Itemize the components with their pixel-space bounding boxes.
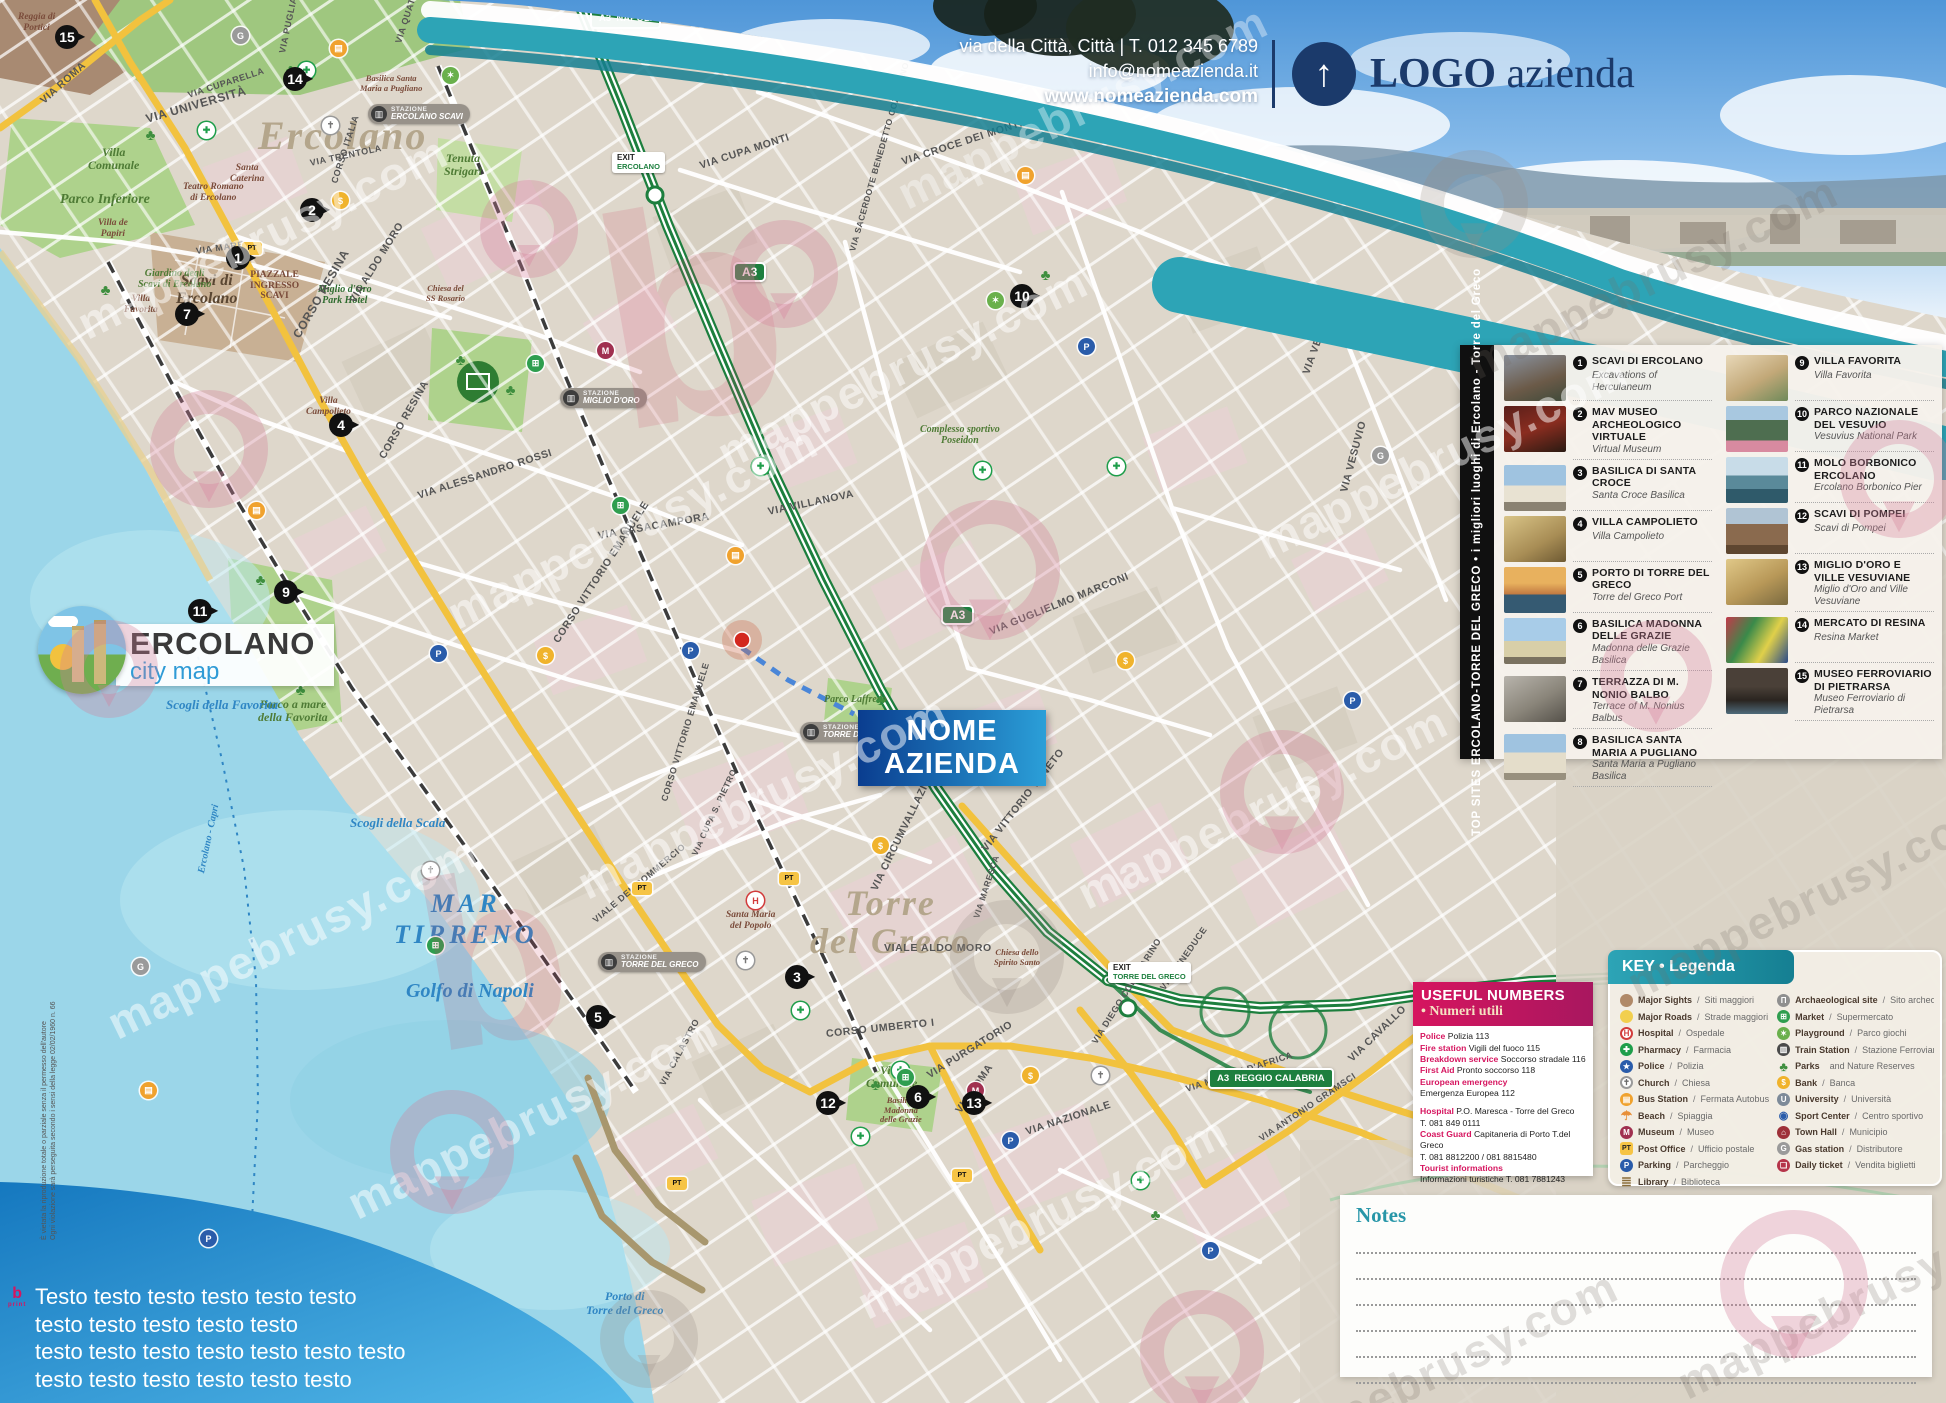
numbered-site-marker: 14 ▶ [283,67,307,91]
site-photo-thumbnail [1726,355,1788,401]
legend-row: ⌂ Town Hall / Municipio [1777,1124,1934,1141]
watermark-pin-icon [920,500,1060,640]
map-place-label: Basilica Santa Maria a Pugliano [360,74,422,93]
hospital-icon: H [1620,1027,1633,1040]
parking-icon: P [682,642,699,659]
marker-pointer-icon: ▶ [196,306,205,320]
bank-icon: $ [1117,652,1134,669]
watermark-text: mappebrusy.com [849,1104,1237,1330]
map-place-label: Scavi di Ercolano [176,272,237,307]
road-name-label: VIA MARESCA [971,854,1001,920]
site-photo-thumbnail [1504,676,1566,722]
road-name-label: VIA MARE [195,239,244,256]
site-subtitle: Scavi di Pompei [1814,523,1934,535]
top-site-entry: 6 BASILICA MADONNA DELLE GRAZIE Madonna … [1504,618,1712,671]
top-site-entry: 9 VILLA FAVORITA Villa Favorita [1726,355,1934,401]
top-site-entry: 4 VILLA CAMPOLIETO Villa Campolieto [1504,516,1712,562]
parking-icon: P [1344,692,1361,709]
tree-icon: ♣ [1037,267,1054,284]
marker-pointer-icon: ▶ [983,1095,992,1109]
useful-number-line: Tourist informations [1420,1163,1586,1174]
site-number-badge: 12 [1795,509,1809,523]
site-title: MIGLIO D'ORO E VILLE VESUVIANE [1814,559,1934,584]
church-icon: ✝ [422,862,439,879]
legend-row: Major Sights / Siti maggiori [1620,992,1769,1009]
road-name-label: VIA ALESSANDRO ROSSI [416,447,554,502]
legend-row: H Hospital / Ospedale [1620,1025,1769,1042]
library-icon: ≣ [1620,1175,1633,1188]
marker-pointer-icon: ▶ [350,417,359,431]
site-number-badge: 11 [1795,458,1809,472]
site-photo-thumbnail [1504,567,1566,613]
top-site-entry: 14 MERCATO DI RESINA Resina Market [1726,617,1934,663]
site-title: VILLA FAVORITA [1814,355,1901,368]
site-photo-thumbnail [1726,457,1788,503]
marker-number: 11 [188,599,212,623]
road-name-label: VIA PURGATORIO [925,1019,1015,1081]
marker-number: 14 [283,67,307,91]
useful-number-line: T. 081 8812200 / 081 8815480 [1420,1152,1586,1163]
bus-stop-icon: ▤ [727,547,744,564]
top-sites-panel: TOP SITES ERCOLANO-TORRE DEL GRECO • i m… [1460,345,1942,759]
useful-number-line: Informazioni turistiche T. 081 7881243 [1420,1174,1586,1185]
useful-number-line: T. 081 849 0111 [1420,1118,1586,1129]
watermark-pin-icon [1220,730,1344,854]
bus-stop-icon: ▤ [248,502,265,519]
marker-pointer-icon: ▶ [321,202,330,216]
marker-pointer-icon: ▶ [806,969,815,983]
numbered-site-marker: 2 ▶ [300,198,324,222]
market-icon: ⊞ [897,1069,914,1086]
site-photo-thumbnail [1726,668,1788,714]
a3-motorway-shield: A3 [733,262,766,282]
pharmacy-icon: ✚ [852,1128,869,1145]
tree-icon: ♣ [142,127,159,144]
gas-station-icon: G [1777,1142,1790,1155]
marker-number: 5 [586,1005,610,1029]
museum-icon: M [967,1082,984,1099]
site-number-badge: 15 [1795,669,1809,683]
top-sites-title-strip: TOP SITES ERCOLANO-TORRE DEL GRECO • i m… [1460,345,1494,759]
site-number-badge: 13 [1795,560,1809,574]
road-name-label: VIA CUPA S. PIETRO [689,767,738,857]
road-name-label: VIA ROMA [38,59,88,106]
road-name-label: VIA CALASTRO [658,1017,702,1087]
useful-number-line: European emergency [1420,1077,1586,1088]
parks-icon: ♣ [1777,1060,1790,1073]
museum-icon: M [597,342,614,359]
header-email: info@nomeazienda.it [959,59,1258,84]
playground-icon: ✶ [1152,52,1169,69]
site-subtitle: Resina Market [1814,632,1934,644]
city-map-poster: Ercolano Torre del Greco Reggia di Porti… [0,0,1946,1403]
legend-row: M Museum / Museo [1620,1124,1769,1141]
bank-icon: $ [1022,1067,1039,1084]
legend-panel: KEY • Legenda Major Sights / Siti maggio… [1608,950,1942,1186]
numbered-site-marker: 1 ▶ [226,246,250,270]
map-place-label: Porto di Torre del Greco [586,1290,664,1318]
map-place-label: Scogli della Favorita [166,698,278,713]
map-place-label: Villa Comunale [866,1064,917,1090]
playground-icon: ✶ [987,292,1004,309]
bank-icon: $ [1777,1076,1790,1089]
train-icon: ▥ [563,390,579,406]
company-logo-arrow-icon: ↑ [1292,42,1356,106]
map-place-label: Parco Inferiore [60,192,150,207]
company-location-callout: NOME AZIENDA [858,710,1046,786]
footer-text-line: testo testo testo testo testo [35,1311,406,1339]
site-title: SCAVI DI POMPEI [1814,508,1906,521]
tree-icon: ♣ [502,382,519,399]
museum-icon: M [1620,1126,1633,1139]
road-name-label: VIA CUPA MONTI [698,131,791,171]
footer-text-line: Testo testo testo testo testo testo [35,1283,406,1311]
map-place-label: Santa Caterina [230,163,264,184]
bus-stop-icon: ▤ [140,1082,157,1099]
legend-row: ✶ Playground / Parco giochi [1777,1025,1934,1042]
road-name-label: VIA VESUVIO [1338,420,1369,494]
marker-number: 6 [906,1085,930,1109]
useful-numbers-title-en: USEFUL NUMBERS [1421,987,1585,1004]
site-number-badge: 2 [1573,407,1587,421]
post-office-icon: PT [667,1177,687,1190]
watermark-pin-icon [390,1090,514,1214]
university-icon: U [1777,1093,1790,1106]
site-title: BASILICA MADONNA DELLE GRAZIE [1592,618,1712,643]
copyright-fineprint: È vietata la riproduzione totale o parzi… [40,1001,58,1240]
site-subtitle: Excavations of Herculaneum [1592,370,1712,394]
notes-writing-line [1356,1306,1916,1332]
road-name-label: VIA VILLANOVA [767,488,855,518]
header-contact-block: via della Città, Città | T. 012 345 6789… [959,34,1258,111]
site-title: MERCATO DI RESINA [1814,617,1926,630]
site-subtitle: Torre del Greco Port [1592,592,1712,604]
road-name-label: VIA NAZIONALE [1024,1099,1112,1138]
train-icon: ▥ [371,106,387,122]
watermark-text: mappebrusy.com [99,824,487,1050]
bus-station-icon: ▤ [1620,1093,1633,1106]
legend-row: $ Bank / Banca [1777,1075,1934,1092]
site-title: VILLA CAMPOLIETO [1592,516,1698,529]
site-number-badge: 7 [1573,677,1587,691]
motorway-exit-label: EXITTORRE DEL GRECO [1108,962,1191,983]
watermark-pin-icon [730,220,838,328]
market-icon: ⊞ [612,497,629,514]
parking-icon: P [1002,1132,1019,1149]
legend-row: PT Post Office / Ufficio postale [1620,1141,1769,1158]
legend-row: ≣ Library / Biblioteca [1620,1174,1769,1191]
road-name-label: VIALE DEL COMMERCIO [591,841,688,924]
pharmacy-icon: ✚ [974,462,991,479]
map-place-label: Torre del Greco [810,885,971,961]
bank-icon: $ [872,837,889,854]
watermark-pin-icon [480,180,578,278]
tree-icon: ♣ [867,1077,884,1094]
legend-row: P Parking / Parcheggio [1620,1157,1769,1174]
road-name-label: VIA GUGLIELMO MARCONI [988,571,1131,638]
site-title: PORTO DI TORRE DEL GRECO [1592,567,1712,592]
motorway-direction-sign: A3 REGGIO CALABRIA [1208,1068,1334,1089]
daily-ticket-icon: ❏ [1777,1159,1790,1172]
notes-writing-line [1356,1280,1916,1306]
legend-row: ✚ Pharmacy / Farmacia [1620,1042,1769,1059]
map-place-label: Giardino degli Scavi di Ercolano [138,268,211,290]
site-number-badge: 14 [1795,618,1809,632]
site-photo-thumbnail [1726,559,1788,605]
playground-icon: ✶ [442,67,459,84]
notes-writing-line [1356,1228,1916,1254]
legend-row: ✝ Church / Chiesa [1620,1075,1769,1092]
site-number-badge: 5 [1573,568,1587,582]
parking-icon: P [1620,1159,1633,1172]
numbered-site-marker: 5 ▶ [586,1005,610,1029]
site-subtitle: Vesuvius National Park [1814,431,1934,443]
badge-subtitle: city map [130,659,334,684]
site-subtitle: Santa Maria a Pugliano Basilica [1592,759,1712,783]
map-place-label: Reggia di Portici [18,12,55,33]
bank-icon: $ [332,192,349,209]
watermark-text: b [571,127,814,500]
top-site-entry: 13 MIGLIO D'ORO E VILLE VESUVIANE Miglio… [1726,559,1934,612]
ruins-illustration-icon [38,606,126,694]
numbered-site-marker: 6 ▶ [906,1085,930,1109]
marker-number: 12 [816,1091,840,1115]
marker-number: 13 [962,1091,986,1115]
watermark-pin-icon [600,1290,698,1388]
tree-icon: ♣ [282,62,299,79]
marker-number: 3 [785,965,809,989]
site-photo-thumbnail [1504,618,1566,664]
marker-pointer-icon: ▶ [304,71,313,85]
useful-number-line: First Aid Pronto soccorso 118 [1420,1065,1586,1076]
road-name-label: CORSO VITTORIO EMANUELE [659,661,711,802]
site-number-badge: 3 [1573,466,1587,480]
marker-pointer-icon: ▶ [247,250,256,264]
site-title: BASILICA SANTA MARIA A PUGLIANO [1592,734,1712,759]
road-name-label: VIA CASACAMPORA [597,510,710,541]
useful-numbers-title-it: • Numeri utili [1421,1004,1585,1020]
map-place-label: Miglio d'Oro Park Hotel [318,284,372,306]
road-name-label: CORSO UMBERTO I [825,1017,935,1040]
train-station-label: ▥ STAZIONEERCOLANO SCAVI [368,104,470,124]
header-website: www.nomeazienda.com [959,84,1258,111]
header-address: via della Città, Città | T. 012 345 6789 [959,34,1258,59]
useful-number-line: Fire station Vigili del fuoco 115 [1420,1043,1586,1054]
road-name-label: VIALE ALDO MORO [884,942,992,954]
map-place-label: Basilica Madonna delle Grazie [880,1096,922,1125]
map-place-label: Complesso sportivo Poseidon [920,424,1000,446]
road-name-label: CORSO RESINA [377,379,432,461]
road-name-label: VIA CAVALLO [1346,1003,1409,1064]
playground-icon: ✶ [1777,1027,1790,1040]
bus-stop-icon: ▤ [330,40,347,57]
bank-icon: $ [537,647,554,664]
badge-city-name: ERCOLANO [130,628,334,659]
city-map-title-badge: ERCOLANO city map [116,624,334,686]
top-site-entry: 2 MAV MUSEO ARCHEOLOGICO VIRTUALE Virtua… [1504,406,1712,460]
marker-number: 7 [175,302,199,326]
notes-writing-line [1356,1254,1916,1280]
marker-pointer-icon: ▶ [76,29,85,43]
road-name-label: VIA ALDO MORO [347,220,406,305]
map-place-label: Chiesa del SS Rosario [426,284,465,303]
pharmacy-icon: ✚ [198,122,215,139]
market-icon: ⊞ [427,937,444,954]
useful-number-line: Breakdown service Soccorso stradale 116 [1420,1054,1586,1065]
map-place-label: Ercolano [258,112,427,159]
gas-station-icon: G [1372,447,1389,464]
gas-station-icon: G [232,27,249,44]
market-icon: ⊞ [1777,1010,1790,1023]
watermark-text: b [397,809,591,1107]
site-photo-thumbnail [1726,617,1788,663]
road-name-label: VIA QUATTRO NOVEMBRE [393,0,442,45]
market-icon: ⊞ [527,355,544,372]
pharmacy-icon: ✚ [792,1002,809,1019]
marker-pointer-icon: ▶ [295,584,304,598]
road-name-label: CORSO VITTORIO EMANUELE [551,499,652,645]
sport-center-icon: ◉ [1777,1109,1790,1122]
site-title: TERRAZZA DI M. NONIO BALBO [1592,676,1712,701]
site-number-badge: 4 [1573,517,1587,531]
road-name-label: VIA DIEGO COLAMARINO [1090,936,1163,1045]
notes-writing-line [1356,1332,1916,1358]
watermark-text: mappebrusy.com [889,0,1277,220]
tree-icon: ♣ [97,282,114,299]
company-logo-text: LOGO azienda [1370,50,1635,98]
tree-icon: ♣ [872,692,889,709]
watermark-text: mappebrusy.com [339,1004,727,1230]
legend-row: Π Archaeological site/Sito archeologico [1777,992,1934,1009]
pharmacy-icon: ✚ [1108,458,1125,475]
site-subtitle: Terrace of M. Nonius Balbus [1592,701,1712,725]
road-name-label: VIA BENEDUCE [1158,925,1209,992]
notes-title: Notes [1356,1203,1916,1228]
train-station-label: ▥ STAZIONETORRE DEL GRECO [598,952,706,972]
map-place-label: Golfo di Napoli [406,980,534,1003]
marker-pointer-icon: ▶ [607,1009,616,1023]
road-name-label: VIA CROCE DEI MONTI [900,117,1024,168]
site-title: BASILICA DI SANTA CROCE [1592,465,1712,490]
site-subtitle: Villa Favorita [1814,370,1934,382]
a3-motorway-shield: A3 [941,605,974,625]
site-subtitle: Ercolano Borbonico Pier [1814,482,1934,494]
map-place-label: Villa Comunale [88,146,139,172]
site-title: SCAVI DI ERCOLANO [1592,355,1703,368]
marker-pointer-icon: ▶ [1031,288,1040,302]
top-site-entry: 7 TERRAZZA DI M. NONIO BALBO Terrace of … [1504,676,1712,729]
police-icon: ★ [1620,1060,1633,1073]
legend-row: ❏ Daily ticket / Vendita biglietti [1777,1157,1934,1174]
site-number-badge: 8 [1573,735,1587,749]
numbered-site-marker: 4 ▶ [329,413,353,437]
hospital-icon: H [747,892,764,909]
numbered-site-marker: 3 ▶ [785,965,809,989]
marker-number: 10 [1010,284,1034,308]
road-name-label: VIA PUGLIANO [277,0,302,54]
bus-stop-icon: ▤ [1017,167,1034,184]
marker-number: 1 [226,246,250,270]
legend-row: ★ Police / Polizia [1620,1058,1769,1075]
motorway-direction-sign: A3 NAPOLI [590,8,661,29]
church-icon: ✝ [1620,1076,1633,1089]
tree-icon: ♣ [1147,1207,1164,1224]
marker-pointer-icon: ▶ [837,1095,846,1109]
print-brand-logo: b print [8,1286,26,1308]
marker-pointer-icon: ▶ [927,1089,936,1103]
parking-icon: P [1078,338,1095,355]
parking-icon: P [430,645,447,662]
site-title: MUSEO FERROVIARIO DI PIETRARSA [1814,668,1934,693]
train-station-icon: ▥ [1777,1043,1790,1056]
watermark-text: mappebrusy.com [1069,694,1457,920]
post-office-icon: PT [632,882,652,895]
church-icon: ✝ [322,117,339,134]
top-site-entry: 5 PORTO DI TORRE DEL GRECO Torre del Gre… [1504,567,1712,613]
pharmacy-icon: ✚ [892,1062,909,1079]
watermark-text: mappebrusy.com [439,414,827,640]
map-place-label: Villa Favorita [124,294,158,315]
watermark-pin-icon [150,390,268,508]
road-name-label: VIA TRENTOLA [309,143,383,168]
map-place-label: PIAZZALE INGRESSO SCAVI [250,270,299,302]
map-place-label: Villa Campolieto [306,396,351,417]
map-place-label: Santa Maria del Popolo [726,910,775,931]
watermark-pin-icon [1140,1290,1264,1403]
useful-number-line: Coast Guard Capitaneria di Porto T.del G… [1420,1129,1586,1152]
train-station-label: ▥ STAZIONEMIGLIO D'ORO [560,388,647,408]
map-place-label: MAR TIRRENO [394,888,538,950]
town-hall-icon: ⌂ [1777,1126,1790,1139]
motorway-exit-label: EXITERCOLANO [612,152,665,173]
marker-number: 4 [329,413,353,437]
pharmacy-icon: ✚ [298,62,315,79]
map-place-label: Tenuta Strigari [444,152,482,178]
road-name-label: CORSO ITALIA [329,114,360,185]
numbered-site-marker: 7 ▶ [175,302,199,326]
footer-text-line: testo testo testo testo testo testo [35,1366,406,1394]
archaeological-site-icon: Π [1777,994,1790,1007]
map-place-label: Villa de Papiri [98,218,128,239]
header-divider [1272,40,1275,108]
numbered-site-marker: 15 ▶ [55,25,79,49]
site-subtitle: Madonna delle Grazie Basilica [1592,643,1712,667]
tree-icon: ♣ [1382,72,1399,89]
map-place-label: Ercolano - Capri [196,804,222,875]
site-subtitle: Santa Croce Basilica [1592,490,1712,502]
legend-row: ⊞ Market / Supermercato [1777,1009,1934,1026]
site-photo-thumbnail [1504,355,1566,401]
top-site-entry: 15 MUSEO FERROVIARIO DI PIETRARSA Museo … [1726,668,1934,721]
road-name-label: VIA SACERDOTE BENEDETTO COZZOLINO [847,61,911,253]
site-title: MOLO BORBONICO ERCOLANO [1814,457,1934,482]
useful-number-line: Emergenza Europea 112 [1420,1088,1586,1099]
legend-row: Major Roads / Strade maggiori [1620,1009,1769,1026]
parking-icon: P [1202,1242,1219,1259]
major-roads-icon [1620,1010,1633,1023]
notes-writing-line [1356,1358,1916,1384]
site-photo-thumbnail [1504,734,1566,780]
footer-text-line: testo testo testo testo testo testo test… [35,1338,406,1366]
legend-row: ▥ Train Station / Stazione Ferroviaria [1777,1042,1934,1059]
site-subtitle: Miglio d'Oro and Ville Vesuviane [1814,584,1934,608]
site-title: PARCO NAZIONALE DEL VESUVIO [1814,406,1934,431]
site-number-badge: 1 [1573,356,1587,370]
map-place-label: Teatro Romano di Ercolano [183,182,244,203]
numbered-site-marker: 11 ▶ [188,599,212,623]
legend-row: U University / Università [1777,1091,1934,1108]
map-place-label: Parco Laffredo [824,694,887,705]
